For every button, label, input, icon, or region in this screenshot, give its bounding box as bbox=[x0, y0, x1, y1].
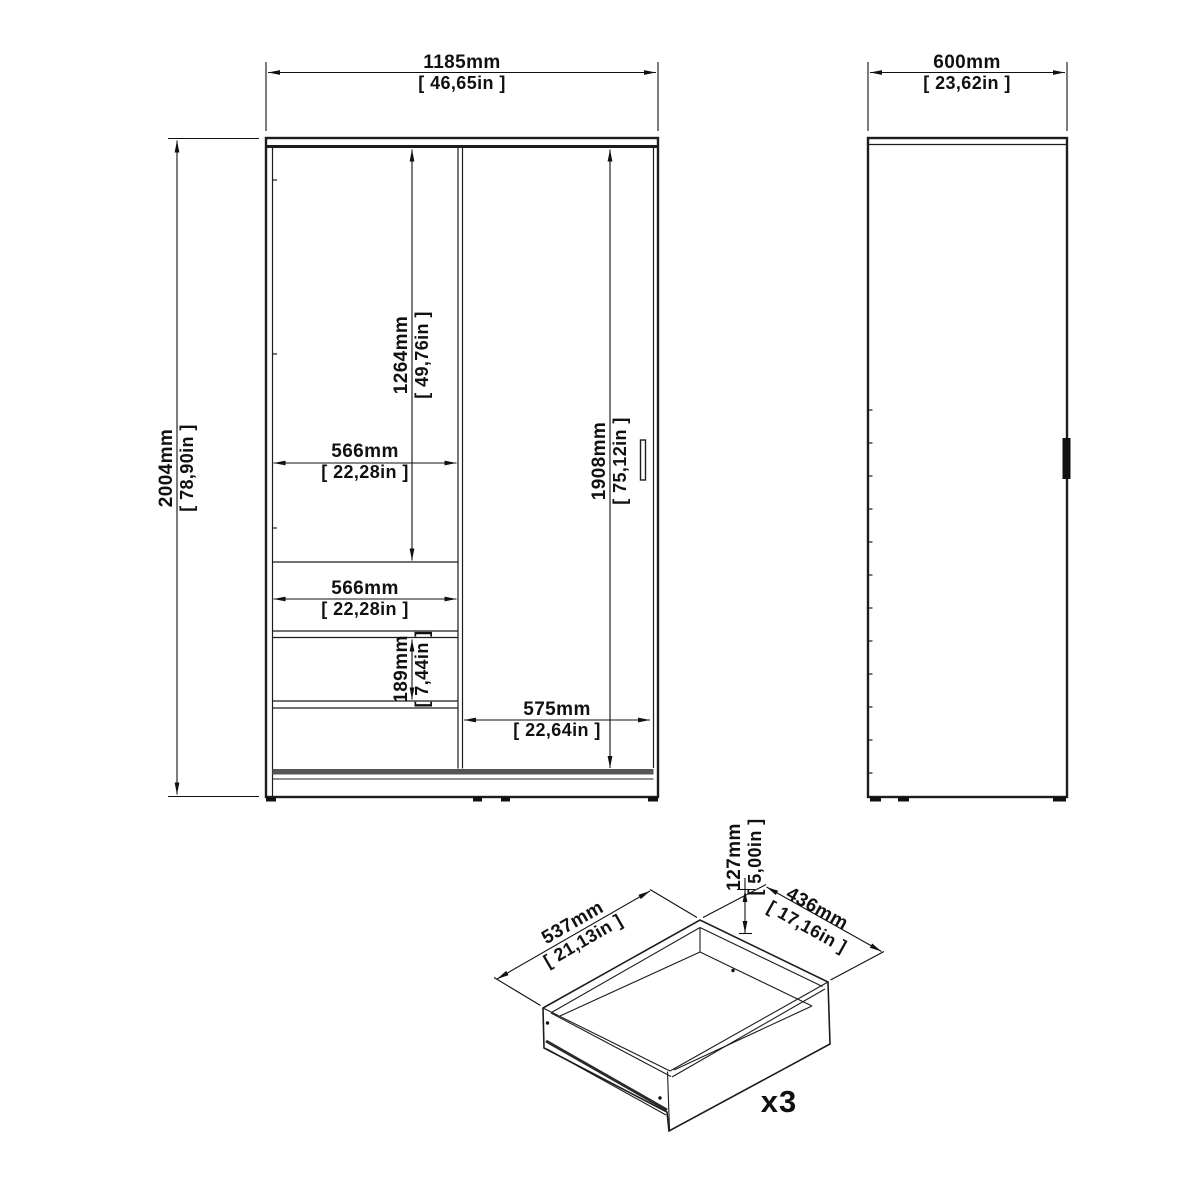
dim-inches-value: [ 22,28in ] bbox=[321, 462, 408, 483]
dim-mm-value: 2004mm bbox=[156, 429, 177, 507]
dim-opening-width: 566mm [ 22,28in ] bbox=[321, 441, 408, 483]
dim-inches-value: [ 22,28in ] bbox=[321, 599, 408, 620]
front-divider bbox=[458, 148, 463, 769]
dim-drawer-width: 566mm [ 22,28in ] bbox=[321, 578, 408, 620]
dim-drawer-height: 189mm [ 7,44in ] bbox=[391, 630, 433, 707]
dim-side-depth: 600mm [ 23,62in ] bbox=[923, 52, 1010, 94]
dim-door-width: 575mm [ 22,64in ] bbox=[513, 699, 600, 741]
dim-inches-value: [ 7,44in ] bbox=[412, 630, 433, 707]
front-shelf-pin-holes bbox=[273, 180, 278, 528]
dim-mm-value: 1185mm bbox=[423, 52, 500, 73]
dim-mm-value: 1908mm bbox=[589, 422, 610, 500]
dim-mm-value: 189mm bbox=[391, 635, 412, 703]
dim-drawer-detail-height: 127mm [ 5,00in ] bbox=[724, 818, 766, 895]
dim-opening-height: 1264mm [ 49,76in ] bbox=[391, 311, 433, 398]
dim-inches-value: [ 46,65in ] bbox=[418, 73, 505, 94]
dim-mm-value: 600mm bbox=[933, 52, 1001, 73]
dim-inches-value: [ 22,64in ] bbox=[513, 720, 600, 741]
sliding-door-handle bbox=[641, 440, 646, 480]
dim-door-height: 1908mm [ 75,12in ] bbox=[589, 417, 631, 504]
dim-mm-value: 1264mm bbox=[391, 316, 412, 394]
dim-inches-value: [ 49,76in ] bbox=[412, 311, 433, 398]
technical-drawing-page: 1185mm [ 46,65in ] 2004mm [ 78,90in ] 12… bbox=[0, 0, 1200, 1200]
dim-inches-value: [ 78,90in ] bbox=[177, 424, 198, 511]
dim-front-overall-width: 1185mm [ 46,65in ] bbox=[418, 52, 505, 94]
dim-front-overall-height: 2004mm [ 78,90in ] bbox=[156, 424, 198, 511]
side-view-wardrobe bbox=[868, 138, 1071, 802]
side-door-handle bbox=[1063, 438, 1071, 479]
drawing-linework bbox=[0, 0, 1200, 1200]
side-outer-frame bbox=[868, 138, 1067, 797]
dim-mm-value: 566mm bbox=[331, 578, 399, 599]
drawer-quantity-label: x3 bbox=[761, 1084, 797, 1120]
dim-mm-value: 575mm bbox=[523, 699, 591, 720]
dim-inches-value: [ 23,62in ] bbox=[923, 73, 1010, 94]
dim-inches-value: [ 75,12in ] bbox=[610, 417, 631, 504]
dim-inches-value: [ 5,00in ] bbox=[745, 818, 766, 895]
front-bottom-rail-strip bbox=[273, 769, 654, 775]
dim-mm-value: 127mm bbox=[724, 823, 745, 891]
dim-mm-value: 566mm bbox=[331, 441, 399, 462]
